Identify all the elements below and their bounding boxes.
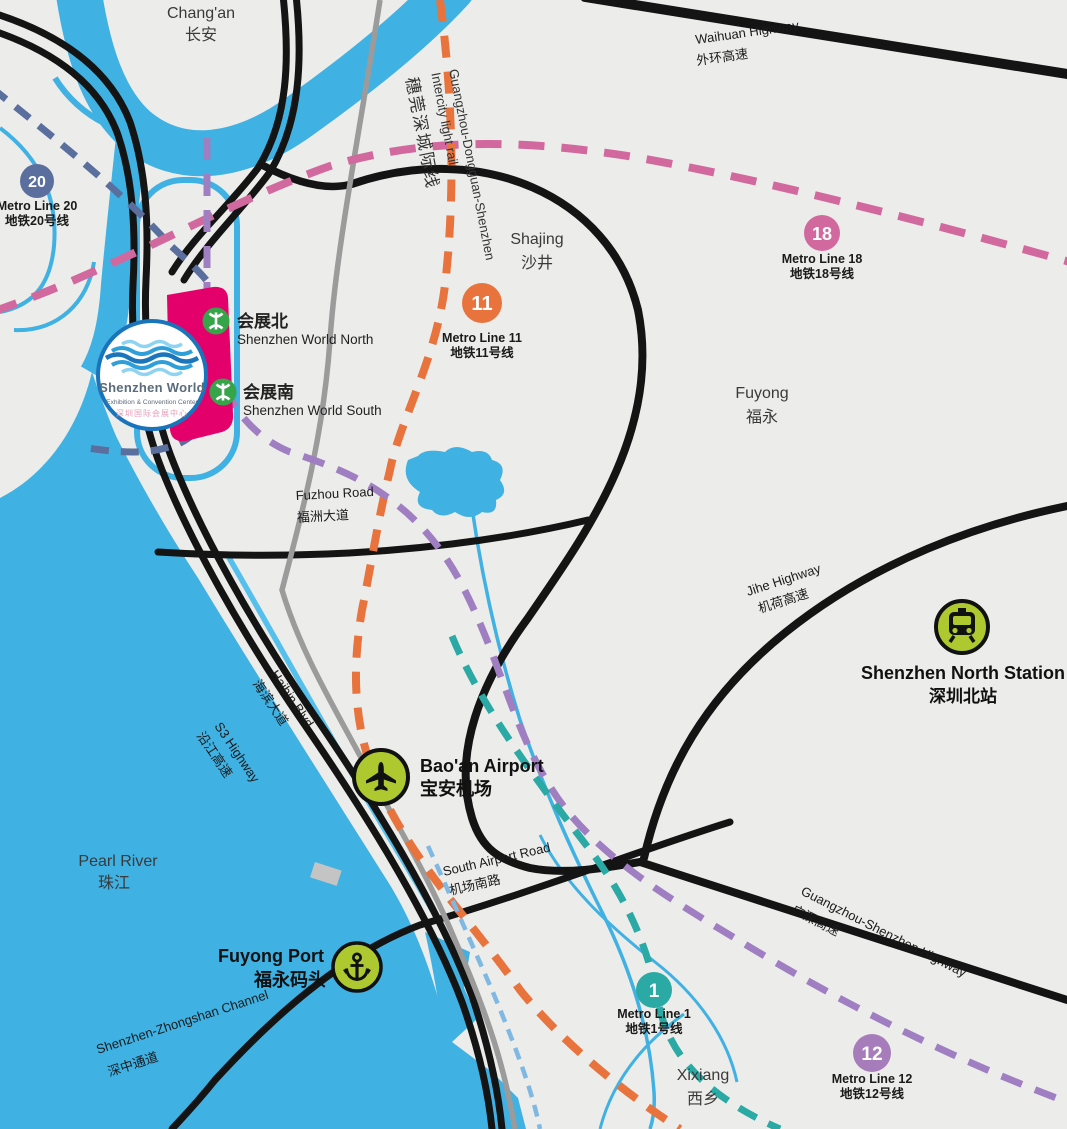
badge-12-number: 12 [861, 1044, 882, 1065]
logo-subtitle-zh: 深圳国际会展中心 [116, 408, 188, 418]
transit-map: Shenzhen World Exhibition & Convention C… [0, 0, 1067, 1129]
logo-subtitle: Exhibition & Convention Center [106, 399, 198, 406]
metro-line-11-label-zh: 地铁11号线 [450, 345, 514, 360]
metro-line-1-label-zh: 地铁1号线 [626, 1021, 683, 1036]
poi-north-station-label-zh: 深圳北站 [929, 686, 997, 706]
train-station-icon [936, 601, 988, 653]
station-south-label-en: Shenzhen World South [243, 403, 382, 418]
metro-line-1-label-en: Metro Line 1 [617, 1007, 691, 1021]
poi-airport-label-zh: 宝安机场 [420, 778, 492, 799]
poi-airport-label-en: Bao'an Airport [420, 756, 544, 776]
station-north-label-en: Shenzhen World North [237, 332, 373, 347]
metro-line-18-label-zh: 地铁18号线 [790, 266, 854, 281]
area-shajing-en: Shajing [510, 231, 563, 248]
metro-line-12-label-zh: 地铁12号线 [840, 1086, 904, 1101]
station-north-label-zh: 会展北 [237, 311, 288, 331]
airport-icon [354, 750, 408, 804]
road-label-fuzhou-zh: 福洲大道 [297, 507, 350, 525]
area-fuyong-en: Fuyong [735, 385, 788, 402]
map-svg: Shenzhen World Exhibition & Convention C… [0, 0, 1067, 1129]
metro-line-20-label-zh: 地铁20号线 [5, 213, 69, 228]
metro-line-18-badge: 18 [804, 215, 840, 251]
poi-north-station-label-en: Shenzhen North Station [861, 663, 1065, 683]
metro-line-11-label-en: Metro Line 11 [442, 331, 522, 345]
shenzhen-world-logo: Shenzhen World Exhibition & Convention C… [98, 321, 206, 429]
poi-port-label-en: Fuyong Port [218, 946, 324, 966]
badge-11-number: 11 [471, 293, 492, 315]
badge-18-number: 18 [812, 224, 832, 244]
area-xixiang-en: Xixiang [677, 1067, 729, 1084]
poi-port-label-zh: 福永码头 [253, 969, 326, 990]
logo-title: Shenzhen World [99, 380, 205, 395]
area-changan-zh: 长安 [185, 26, 217, 44]
area-shajing-zh: 沙井 [521, 254, 553, 272]
area-pearl-river-zh: 珠江 [98, 874, 130, 892]
metro-line-12-label-en: Metro Line 12 [832, 1072, 913, 1086]
metro-line-18-label-en: Metro Line 18 [782, 252, 863, 266]
area-pearl-river-en: Pearl River [78, 853, 158, 870]
area-xixiang-zh: 西乡 [687, 1091, 719, 1108]
metro-line-20-label-en: Metro Line 20 [0, 199, 77, 213]
metro-station-icon-south [210, 379, 237, 406]
metro-line-1-badge: 1 [636, 972, 672, 1008]
badge-1-number: 1 [649, 981, 660, 1002]
badge-20-number: 20 [28, 174, 46, 191]
area-fuyong-zh: 福永 [746, 408, 778, 426]
metro-line-12-badge: 12 [853, 1034, 891, 1072]
metro-line-11-badge: 11 [462, 283, 502, 323]
metro-station-icon-north [203, 308, 230, 335]
metro-line-20-badge: 20 [20, 164, 54, 198]
area-changan-en: Chang'an [167, 5, 235, 22]
anchor-icon [333, 943, 381, 991]
station-south-label-zh: 会展南 [243, 382, 294, 402]
